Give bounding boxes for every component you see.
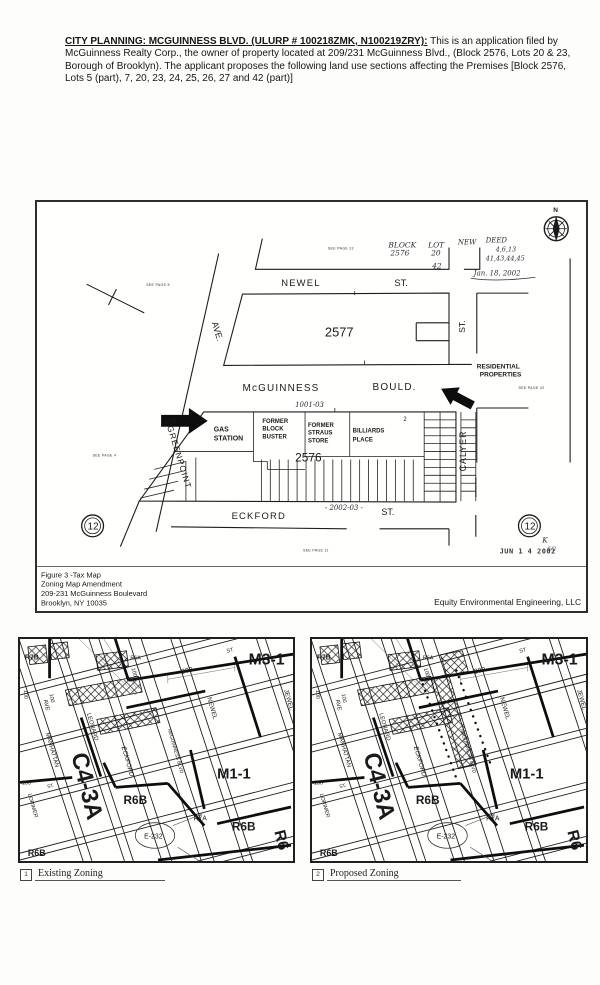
label-fb1: FORMER [262,419,288,425]
hand-42: 42 [431,261,442,270]
date-stamp: JUN 1 4 2002 [500,548,556,556]
existing-caption-label: Existing Zoning [35,868,165,881]
label-place: PLACE [353,438,373,444]
label-calyer-st: ST. [457,321,467,333]
caption-line4: Brooklyn, NY 10035 [41,599,107,608]
label-eckford-st: ST. [381,507,394,517]
note-p11: SEE PAGE 11 [303,549,329,553]
label-greenpoint: GREENPOINT [165,424,194,489]
street-labels: NEWEL ST. McGUINNESS BOULD. ECKFORD ST. … [165,277,468,521]
handwritten-notes: BLOCK 2576 LOT 20 42 NEW DEED 4,6,13 41,… [295,237,556,553]
label-newel-st: ST. [394,277,408,288]
hand-block-no: 2576 [389,248,409,257]
compass-north-label: N [553,207,558,214]
label-calyer: CALYER [458,430,468,471]
page-circle-left-label: 12 [88,521,100,532]
label-fb2: BLOCK [262,427,284,433]
label-fs1: FORMER [308,423,334,429]
label-eckford: ECKFORD [232,510,286,521]
existing-caption-number: 1 [20,869,32,881]
see-page-notes: SEE PAGE 8 SEE PAGE 13 SEE PAGE 4 SEE PA… [93,247,545,553]
label-ave: AVE. [210,320,225,342]
company-name: Equity Environmental Engineering, LLC [434,597,581,607]
existing-zoning-base [20,639,293,861]
hand-note-bottom: - 2002-03 - [325,504,364,512]
label-gas: GAS [214,427,229,434]
caption-line2: Zoning Map Amendment [41,580,122,589]
header-title: CITY PLANNING: MCGUINNESS BLVD. (ULURP #… [65,36,427,47]
hand-k: K [541,536,548,545]
proposed-caption-number: 2 [312,869,324,881]
note-p4: SEE PAGE 4 [93,454,117,458]
label-billiards-lot: 2 [403,417,406,423]
hand-new: NEW [457,239,477,247]
label-block-2577: 2577 [325,325,354,340]
hand-date: Jan. 18, 2002 [472,269,521,277]
hand-deed: DEED [485,237,508,245]
caption-line3: 209-231 McGuinness Boulevard [41,589,147,598]
hand-deed-lots2: 41,43,44,45 [485,254,525,262]
proposed-zoning-caption: 2 Proposed Zoning [312,868,461,881]
existing-zoning-svg [20,639,293,861]
tax-map-figure: N SITE NEWEL ST. McGUINNESS BOULD. ECKFO… [35,200,588,613]
tax-map-svg: N SITE NEWEL ST. McGUINNESS BOULD. ECKFO… [37,202,586,611]
label-bould: BOULD. [373,382,417,393]
label-block-2576: 2576 [295,450,322,464]
label-fs3: STORE [308,439,328,445]
proposed-caption-label: Proposed Zoning [327,868,461,881]
existing-zoning-caption: 1 Existing Zoning [20,868,165,881]
caption-line1: Figure 3 -Tax Map [41,570,101,579]
label-fs2: STRAUS [308,431,332,437]
note-p8: SEE PAGE 8 [146,283,170,287]
scanned-document-page: { "colors": { "paper": "#fdfdfc", "ink":… [0,0,600,985]
direction-arrow-icon [437,380,478,414]
proposed-zoning-svg [312,639,586,861]
hand-deed-lots1: 4,6,13 [495,246,517,254]
label-station: STATION [214,436,243,443]
label-fb3: BUSTER [262,435,287,441]
hand-note-top: 1001-03 [295,401,324,409]
label-newel: NEWEL [281,277,320,288]
note-p13: SEE PAGE 13 [328,247,354,251]
existing-zoning-figure [18,637,295,863]
label-mcguinness: McGUINNESS [243,383,320,394]
page-circle-right-label: 12 [524,521,536,532]
label-billiards: BILLIARDS [353,429,385,435]
note-p42: SEE PAGE 42 [518,386,544,390]
label-residential: RESIDENTIAL [477,363,520,370]
hand-lot-no: 20 [430,248,441,257]
label-properties: PROPERTIES [480,371,522,378]
figure-caption: Figure 3 -Tax Map Zoning Map Amendment 2… [41,570,147,607]
header-paragraph: CITY PLANNING: MCGUINNESS BLVD. (ULURP #… [65,36,573,86]
compass-icon [544,216,568,242]
proposed-zoning-figure [310,637,588,863]
